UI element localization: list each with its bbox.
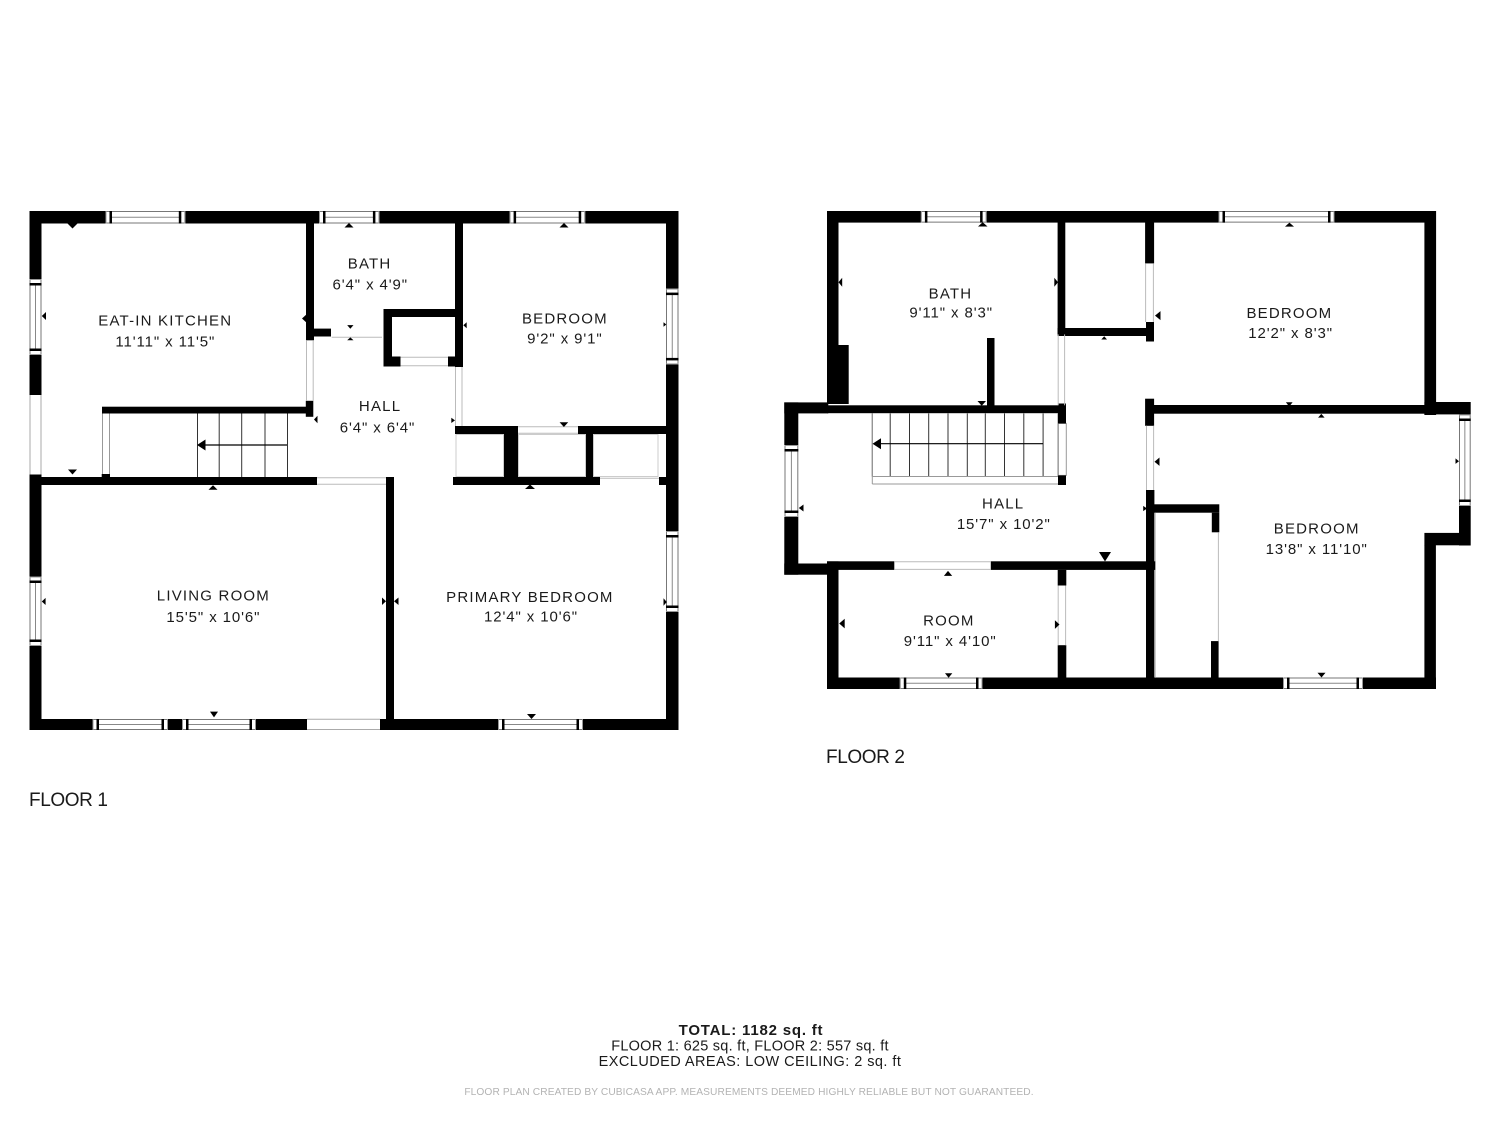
svg-text:LIVING ROOM: LIVING ROOM	[157, 588, 270, 605]
svg-text:12'2" x 8'3": 12'2" x 8'3"	[1248, 325, 1333, 342]
svg-text:BEDROOM: BEDROOM	[1246, 305, 1332, 322]
svg-text:PRIMARY BEDROOM: PRIMARY BEDROOM	[446, 589, 613, 606]
svg-text:9'11" x 4'10": 9'11" x 4'10"	[904, 633, 997, 650]
svg-text:11'11" x 11'5": 11'11" x 11'5"	[115, 334, 215, 351]
svg-text:TOTAL: 1182 sq. ft: TOTAL: 1182 sq. ft	[679, 1022, 824, 1039]
svg-text:FLOOR 2: FLOOR 2	[826, 747, 905, 768]
svg-text:FLOOR PLAN CREATED BY CUBICASA: FLOOR PLAN CREATED BY CUBICASA APP. MEAS…	[464, 1087, 1033, 1098]
svg-text:15'5" x 10'6": 15'5" x 10'6"	[166, 609, 260, 626]
svg-text:9'2" x 9'1": 9'2" x 9'1"	[527, 331, 602, 348]
svg-text:EAT-IN KITCHEN: EAT-IN KITCHEN	[98, 312, 232, 329]
svg-text:6'4" x 6'4": 6'4" x 6'4"	[340, 419, 415, 436]
svg-text:BEDROOM: BEDROOM	[522, 311, 608, 328]
svg-text:FLOOR 1: FLOOR 1	[29, 790, 108, 811]
svg-text:BEDROOM: BEDROOM	[1274, 520, 1360, 537]
svg-text:6'4" x 4'9": 6'4" x 4'9"	[333, 276, 408, 293]
svg-text:BATH: BATH	[348, 255, 392, 272]
svg-text:13'8" x 11'10": 13'8" x 11'10"	[1266, 541, 1368, 558]
svg-text:9'11" x 8'3": 9'11" x 8'3"	[909, 305, 993, 322]
svg-text:FLOOR 1: 625 sq. ft, FLOOR 2:: FLOOR 1: 625 sq. ft, FLOOR 2: 557 sq. ft	[611, 1039, 889, 1055]
svg-text:ROOM: ROOM	[923, 613, 974, 630]
svg-text:12'4" x 10'6": 12'4" x 10'6"	[484, 609, 578, 626]
svg-text:15'7" x 10'2": 15'7" x 10'2"	[957, 516, 1051, 533]
svg-text:HALL: HALL	[982, 496, 1024, 513]
svg-text:BATH: BATH	[929, 285, 973, 302]
svg-text:EXCLUDED AREAS: LOW CEILING: 2: EXCLUDED AREAS: LOW CEILING: 2 sq. ft	[599, 1054, 902, 1070]
svg-text:HALL: HALL	[359, 398, 401, 415]
